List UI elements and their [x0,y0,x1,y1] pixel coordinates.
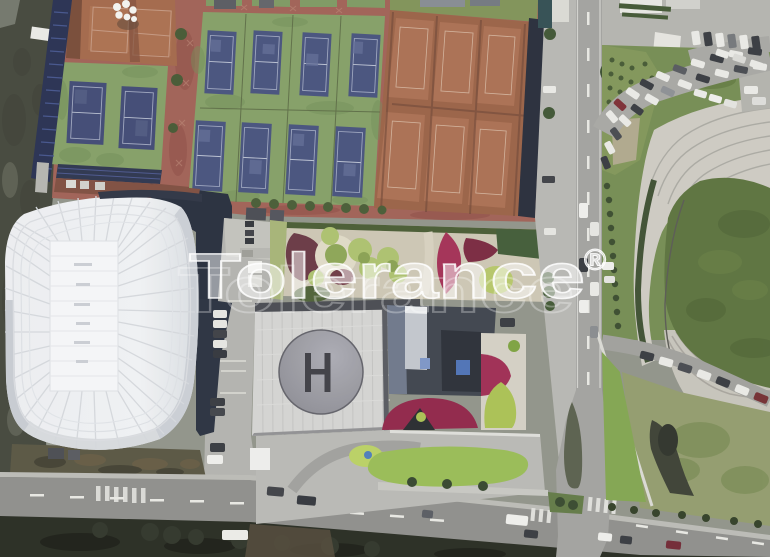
svg-text:Tolerance: Tolerance [189,240,585,312]
svg-text:®: ® [584,244,606,277]
